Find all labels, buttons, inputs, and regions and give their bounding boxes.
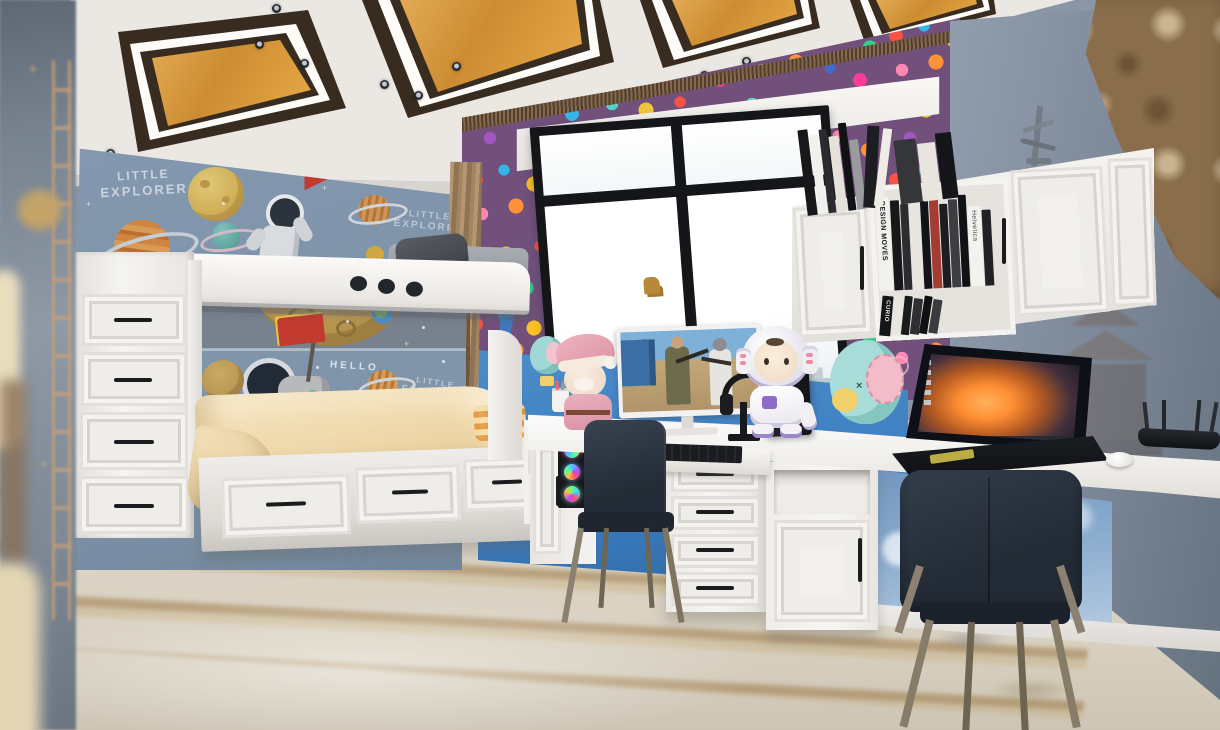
cabinet-door-right: [1010, 166, 1110, 317]
pink-hat-doll: [556, 334, 622, 430]
astronaut-doll: [738, 326, 818, 438]
cabinet-handle: [1002, 218, 1006, 264]
china-flag: [275, 312, 326, 347]
chair-seat: [920, 602, 1070, 624]
star-doodle: [28, 64, 38, 74]
curtain-fold-blurred: [0, 380, 26, 560]
chair-leg: [644, 528, 655, 608]
bed-headboard-end: [488, 330, 522, 460]
rail-hole: [378, 279, 395, 294]
chair-leg: [1050, 619, 1081, 728]
drawer-handle: [114, 504, 154, 508]
ear-pod: [802, 346, 818, 374]
cream-shape-blurred: [0, 560, 40, 730]
chair-backrest: [900, 470, 1082, 612]
ceiling-spotlight: [414, 91, 423, 100]
cubby-door: [774, 520, 870, 622]
drawer-handle: [114, 378, 152, 382]
carpet-light-sheen: [0, 600, 900, 730]
ceiling-spotlight: [272, 4, 281, 13]
star-doodle: [40, 460, 48, 468]
game-soldier: [665, 346, 691, 405]
cabinet-handle: [858, 538, 862, 582]
window-pane: [539, 126, 675, 196]
laptop-screen: [906, 344, 1092, 452]
desk-chair-back-view: [890, 470, 1100, 730]
mouse: [1106, 452, 1133, 467]
game-crate: [621, 339, 657, 386]
ceiling-spotlight: [452, 62, 461, 71]
band-divider: [196, 348, 466, 351]
drawer-handle: [696, 548, 734, 552]
planet-art-blurred: [18, 190, 62, 230]
suit-leg: [752, 424, 774, 438]
drawer-handle: [696, 510, 734, 514]
rail-hole: [350, 276, 367, 291]
ear-pod: [736, 348, 751, 374]
decor-figurine: [1018, 106, 1058, 172]
cabinet-door-far-right: [1107, 157, 1156, 306]
chair-backrest: [584, 420, 666, 520]
open-cubby: [774, 470, 870, 514]
moon-art: [188, 167, 244, 221]
face: [754, 340, 798, 382]
chair-leg: [962, 622, 975, 730]
chair-leg: [561, 527, 584, 623]
desk-cubby-unit: [766, 462, 878, 630]
room-render: LITTLE EXPLORER LITTLE EXPLORER: [0, 0, 1220, 730]
chair-leg: [1016, 622, 1029, 730]
drawer-handle: [696, 586, 734, 590]
books-on-cabinet-top: [794, 94, 975, 216]
stair-drawer-unit: [74, 252, 194, 538]
drawer-handle: [114, 318, 152, 322]
chest-panel: [762, 396, 777, 409]
wall-text-little-explorer: LITTLE EXPLORER: [99, 166, 188, 202]
desk-chair-front: [560, 420, 690, 630]
doll-belt: [566, 410, 610, 415]
ceiling-spotlight: [300, 59, 309, 68]
chair-leg: [900, 619, 934, 728]
suit-leg: [780, 424, 802, 438]
rail-hole: [406, 281, 423, 296]
bookshelf-row-lower: CURIO: [879, 289, 1011, 337]
chair-leg: [662, 527, 685, 623]
chair-leg: [598, 528, 609, 608]
wall-text-hello: HELLO: [329, 354, 379, 375]
foreground-wall: [0, 0, 76, 730]
suit-body: [750, 386, 804, 428]
ceiling-spotlight: [255, 40, 264, 49]
elephant-figurine: [643, 276, 660, 294]
drawer-handle: [114, 440, 154, 444]
ceiling-spotlight: [380, 80, 389, 89]
wifi-router: [1138, 402, 1220, 462]
moon-crater: [200, 180, 210, 188]
ladder-art-blurred: [52, 60, 72, 620]
chair-seat: [578, 512, 674, 532]
cabinet-handle: [860, 246, 864, 290]
laptop: [892, 344, 1108, 482]
doll-muzzle: [574, 378, 594, 391]
doll-hat-pom: [604, 356, 617, 369]
